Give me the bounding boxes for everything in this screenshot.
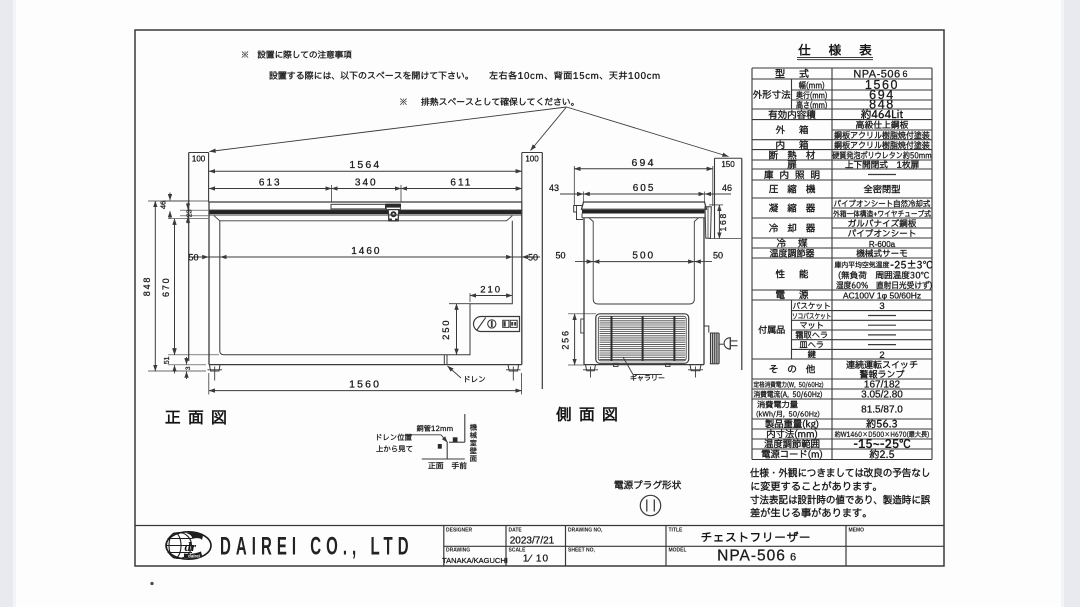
svg-text:51: 51 [164, 356, 171, 364]
svg-text:694: 694 [631, 157, 655, 169]
svg-text:50: 50 [188, 253, 198, 263]
svg-text:1460: 1460 [351, 246, 381, 257]
svg-text:MODEL: MODEL [669, 548, 687, 554]
svg-text:DRAWING NO,: DRAWING NO, [568, 528, 603, 534]
svg-text:46: 46 [722, 183, 732, 193]
svg-text:50: 50 [528, 253, 538, 263]
svg-text:DAIREI CO., LTD: DAIREI CO., LTD [220, 533, 414, 561]
svg-text:168: 168 [718, 212, 728, 232]
svg-text:2: 2 [879, 350, 884, 361]
svg-text:DATE: DATE [509, 528, 523, 534]
svg-text:6: 6 [902, 69, 907, 79]
svg-text:NPA-506: NPA-506 [717, 548, 786, 565]
svg-text:210: 210 [480, 285, 502, 296]
svg-text:605: 605 [633, 183, 656, 194]
svg-text:848: 848 [142, 276, 152, 296]
svg-text:340: 340 [355, 178, 378, 189]
svg-text:250: 250 [441, 319, 452, 340]
svg-text:dr: dr [185, 539, 198, 554]
svg-text:46: 46 [159, 201, 168, 209]
svg-text:1560: 1560 [349, 379, 381, 391]
svg-text:3.05/2.80: 3.05/2.80 [861, 389, 903, 400]
svg-text:dairei: dairei [188, 554, 200, 559]
svg-text:500: 500 [632, 251, 655, 262]
svg-text:100: 100 [525, 155, 539, 164]
svg-text:TANAKA/KAGUCHI: TANAKA/KAGUCHI [442, 556, 508, 565]
svg-text:100: 100 [192, 155, 206, 164]
svg-text:TITLE: TITLE [669, 528, 684, 534]
svg-text:R-600a: R-600a [869, 240, 896, 249]
svg-text:670: 670 [161, 277, 171, 297]
svg-text:50: 50 [555, 251, 565, 261]
svg-text:848: 848 [869, 98, 895, 112]
svg-text:DESIGNER: DESIGNER [446, 528, 473, 534]
svg-text:AC100V 1φ 50/60Hz: AC100V 1φ 50/60Hz [843, 290, 921, 300]
svg-text:3: 3 [185, 366, 192, 370]
svg-text:2023/7/21: 2023/7/21 [510, 536, 555, 547]
svg-text:SHEET NO,: SHEET NO, [568, 548, 596, 554]
svg-text:43: 43 [549, 183, 559, 193]
svg-text:50: 50 [713, 251, 723, 261]
svg-text:150: 150 [721, 160, 735, 169]
svg-text:3: 3 [879, 301, 884, 312]
svg-text:611: 611 [450, 178, 472, 189]
svg-text:613: 613 [259, 178, 282, 189]
svg-text:81.5/87.0: 81.5/87.0 [861, 404, 903, 415]
svg-text:DRAWING: DRAWING [446, 548, 470, 554]
svg-text:1∕ 10: 1∕ 10 [523, 554, 549, 565]
svg-text:MEMO: MEMO [849, 528, 865, 534]
svg-text:6: 6 [790, 552, 796, 564]
svg-text:1564: 1564 [349, 159, 381, 171]
svg-text:256: 256 [561, 329, 571, 349]
